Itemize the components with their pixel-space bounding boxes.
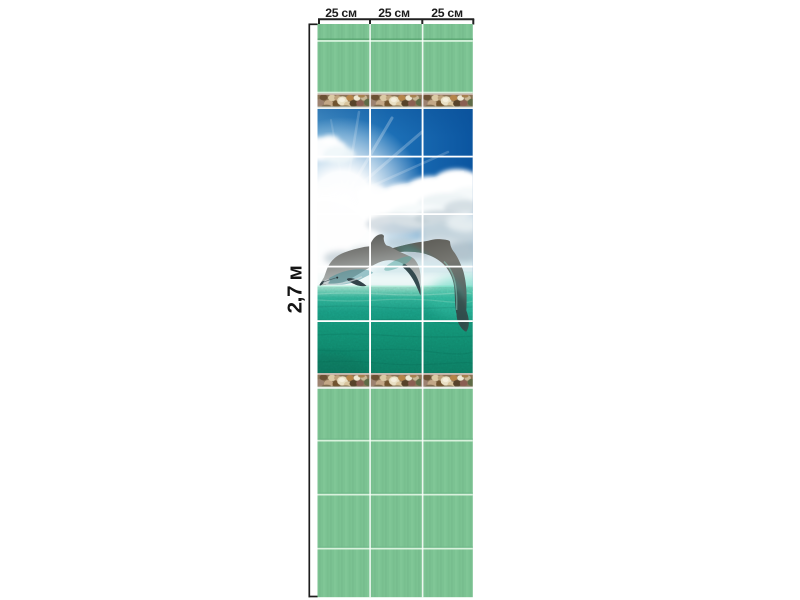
svg-text:25 см: 25 см	[325, 6, 357, 20]
svg-text:25 см: 25 см	[378, 6, 410, 20]
svg-text:2,7 м: 2,7 м	[284, 266, 307, 314]
svg-text:25 см: 25 см	[431, 6, 463, 20]
